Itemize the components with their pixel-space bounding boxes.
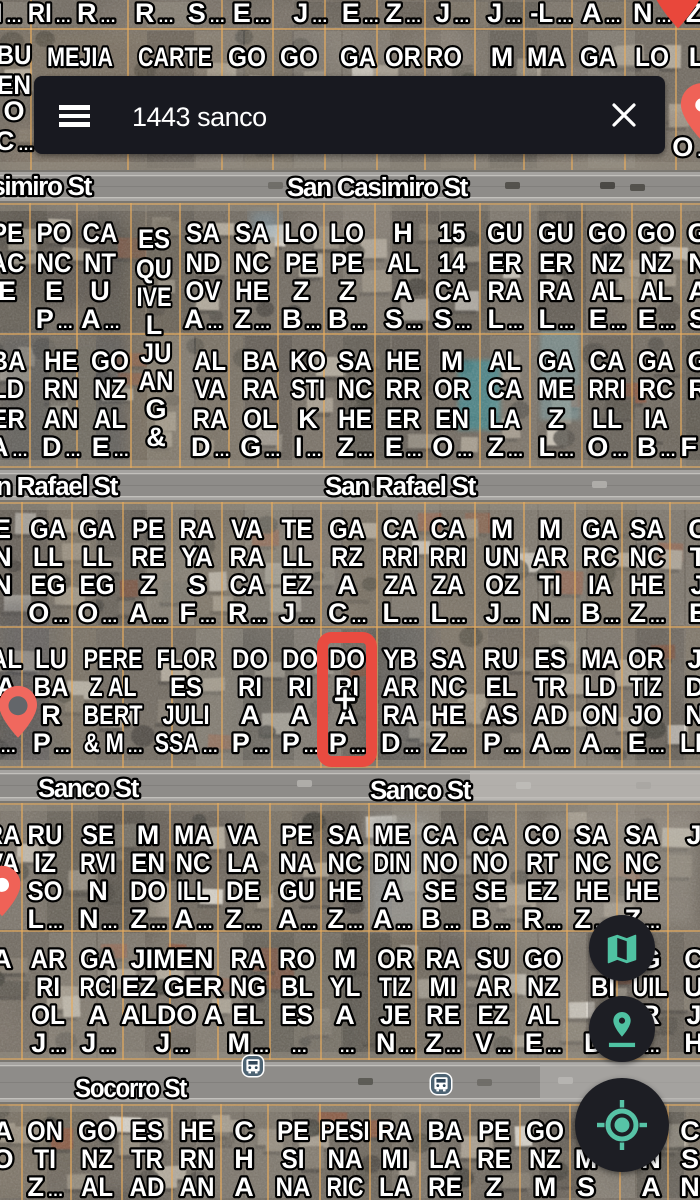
svg-text:ALCALAZ …: ALCALAZ … (488, 346, 523, 462)
svg-text:MEDINAA …: MEDINAA … (373, 820, 411, 934)
svg-text:CUJH: CUJH (684, 944, 700, 1058)
svg-text:GARZAC …: GARZAC … (328, 514, 366, 628)
svg-text:GALLEGO …: GALLEGO … (28, 514, 67, 628)
svg-text:PONCEP …: PONCEP … (36, 218, 72, 334)
svg-text:LUBARP …: LUBARP … (33, 644, 69, 758)
svg-text:HERNAND …: HERNAND … (42, 346, 80, 462)
svg-text:CARRIZAL …: CARRIZAL … (382, 514, 419, 628)
svg-text:CARRILLO …: CARRILLO … (587, 346, 626, 462)
svg-text:GA: GA (340, 42, 376, 72)
svg-text:RAMILA: RAMILA (378, 1116, 413, 1200)
svg-text:GONZALE …: GONZALE … (91, 346, 129, 462)
svg-text:YBARRAD …: YBARRAD … (381, 644, 419, 758)
svg-text:BARAOLG …: BARAOLG … (240, 346, 279, 462)
svg-text:1514CAS …: 1514CAS … (434, 218, 470, 334)
svg-text:GONZALE …: GONZALE … (588, 218, 626, 334)
svg-text:PEREZA …: PEREZA … (129, 514, 167, 628)
svg-text:GO: GO (228, 42, 266, 72)
svg-text:LO: LO (635, 42, 669, 72)
svg-text:CARRIZAL …: CARRIZAL … (430, 514, 467, 628)
svg-text:MANCILLA …: MANCILLA … (174, 820, 212, 934)
svg-text:GARCIAJ …: GARCIAJ … (80, 944, 117, 1058)
svg-text:CANTUA …: CANTUA … (81, 218, 119, 334)
svg-text:MA: MA (527, 42, 565, 72)
svg-text:CHA: CHA (234, 1116, 254, 1200)
svg-text:CANOSEB …: CANOSEB … (471, 820, 509, 934)
svg-text:ENN: ENN (0, 514, 12, 600)
svg-text:CTJE: CTJE (688, 514, 700, 628)
svg-text:SERVINN …: SERVINN … (79, 820, 117, 934)
svg-text:RUIZSOL …: RUIZSOL … (28, 820, 63, 934)
svg-text:BALDERA …: BALDERA … (0, 346, 27, 462)
svg-text:Socorro St: Socorro St (75, 1075, 188, 1103)
svg-text:SANCHEZ …: SANCHEZ … (328, 820, 363, 934)
svg-text:n Rafael St: n Rafael St (0, 473, 119, 501)
svg-text:GA: GA (580, 42, 616, 72)
svg-text:SANCHEZ …: SANCHEZ … (575, 820, 610, 934)
svg-text:SANDOVA …: SANDOVA … (184, 218, 222, 334)
svg-text:GNAS: GNAS (687, 218, 700, 334)
svg-text:RAYASF …: RAYASF … (180, 514, 215, 628)
svg-text:ALVARAD …: ALVARAD … (191, 346, 229, 462)
svg-text:PEREZ ALBERT& M …: PEREZ ALBERT& M … (84, 644, 143, 758)
svg-text:A: A (0, 944, 12, 974)
svg-text:Sanco St: Sanco St (38, 775, 140, 803)
svg-text:L: L (689, 42, 700, 72)
svg-text:ORTIZJEN …: ORTIZJEN … (376, 944, 414, 1058)
svg-text:San Casimiro St: San Casimiro St (287, 174, 469, 202)
svg-text:SANCHEZ …: SANCHEZ … (431, 644, 466, 758)
svg-text:PENAGUA …: PENAGUA … (278, 820, 316, 934)
svg-text:asimiro St: asimiro St (0, 173, 93, 201)
svg-text:SANCHEZ …: SANCHEZ … (630, 514, 665, 628)
svg-text:PESINARIC: PESINARIC (321, 1116, 370, 1200)
svg-text:GONZAL: GONZAL (78, 1116, 116, 1200)
svg-text:HERRERE …: HERRERE … (385, 346, 421, 462)
svg-text:RUELASP …: RUELASP … (483, 644, 519, 758)
svg-text:CARTE: CARTE (138, 42, 212, 72)
svg-text:LOPEZB …: LOPEZB … (282, 218, 320, 334)
svg-text:Sanco St: Sanco St (370, 777, 472, 805)
svg-text:J: J (686, 820, 700, 850)
svg-text:SANCHEZ …: SANCHEZ … (338, 346, 373, 462)
svg-text:GUERRAL …: GUERRAL … (487, 218, 523, 334)
svg-text:CANOSEB …: CANOSEB … (421, 820, 459, 934)
svg-text:CSN: CSN (680, 1116, 700, 1200)
svg-text:GONZALE …: GONZALE … (637, 218, 675, 334)
svg-text:ARRIOLJ …: ARRIOLJ … (31, 944, 66, 1058)
svg-text:TELLEZJ …: TELLEZJ … (280, 514, 313, 628)
svg-text:MALDONA …: MALDONA … (581, 644, 619, 758)
svg-text:ESTRADA …: ESTRADA … (531, 644, 569, 758)
svg-text:GUERRAL …: GUERRAL … (538, 218, 574, 334)
svg-text:LOPEZB …: LOPEZB … (328, 218, 366, 334)
svg-text:MEJIA: MEJIA (47, 42, 113, 72)
svg-text:BALARE: BALARE (428, 1116, 463, 1200)
svg-text:GARCIAB …: GARCIAB … (581, 514, 619, 628)
svg-text:BUENOC …: BUENOC … (0, 40, 33, 156)
svg-text:GALLEGO …: GALLEGO … (77, 514, 116, 628)
svg-text:SUAREZV …: SUAREZV … (475, 944, 511, 1058)
svg-text:SANCHEZ …: SANCHEZ … (235, 218, 270, 334)
svg-text:GO: GO (280, 42, 318, 72)
svg-text:RANGELM …: RANGELM … (228, 944, 269, 1058)
svg-text:VALADEZ …: VALADEZ … (226, 820, 261, 934)
svg-text:ESTRAD: ESTRAD (130, 1116, 165, 1200)
svg-text:M: M (491, 42, 514, 72)
svg-text:San Rafael St: San Rafael St (325, 473, 477, 501)
svg-text:ORTIZJOE …: ORTIZJOE … (628, 644, 664, 758)
svg-text:HERNAN: HERNAN (180, 1116, 215, 1200)
svg-text:VARACAR …: VARACAR … (228, 514, 266, 628)
svg-text:GONZALE …: GONZALE … (524, 944, 562, 1058)
svg-text:RO: RO (426, 42, 462, 72)
svg-text:OR: OR (385, 42, 421, 72)
svg-text:CORTEZR …: CORTEZR … (523, 820, 561, 934)
svg-text:AO: AO (0, 1116, 14, 1174)
svg-text:FLORESJULISSA …: FLORESJULISSA … (155, 644, 217, 758)
svg-text:RAMIREZ …: RAMIREZ … (426, 944, 461, 1058)
